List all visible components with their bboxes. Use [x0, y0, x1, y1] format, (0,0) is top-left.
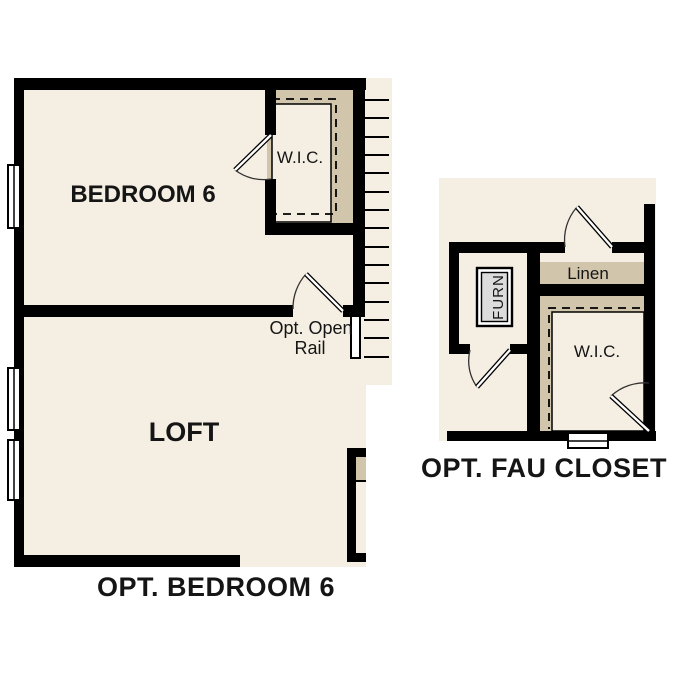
floor-plan-svg: BEDROOM 6 LOFT W.I.C. Opt. Open Rail OPT… [0, 0, 687, 687]
plan-title-fau-closet: OPT. FAU CLOSET [421, 453, 667, 483]
threshold-icon [568, 433, 608, 448]
plan-opt-fau-closet: FURN Linen W.I.C. OPT. FAU CLOSET [421, 178, 667, 483]
furnace-unit-icon: FURN [477, 268, 512, 326]
linen-label: Linen [567, 264, 609, 283]
furnace-label: FURN [490, 274, 507, 320]
fau-wic-label: W.I.C. [574, 342, 620, 361]
plan-opt-bedroom-6: BEDROOM 6 LOFT W.I.C. Opt. Open Rail OPT… [8, 78, 392, 602]
wic-label: W.I.C. [277, 148, 323, 167]
loft-label: LOFT [149, 417, 220, 447]
plan-title-bedroom6: OPT. BEDROOM 6 [97, 572, 335, 602]
open-rail-note-line1: Opt. Open [269, 318, 352, 338]
floor-plan-figure: BEDROOM 6 LOFT W.I.C. Opt. Open Rail OPT… [0, 0, 687, 687]
open-rail-note-line2: Rail [294, 338, 325, 358]
bedroom6-label: BEDROOM 6 [70, 181, 215, 208]
